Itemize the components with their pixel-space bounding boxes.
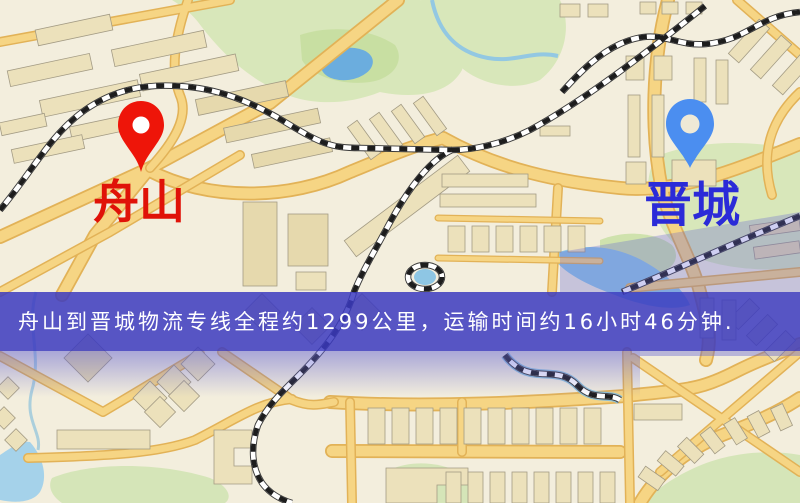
banner-text: 舟山到晋城物流专线全程约1299公里，运输时间约16小时46分钟. — [18, 310, 735, 334]
map-canvas[interactable]: 舟山到晋城物流专线全程约1299公里，运输时间约16小时46分钟. 舟山 晋城 — [0, 0, 800, 503]
destination-label: 晋城 — [644, 179, 740, 232]
pin-hole — [133, 117, 150, 134]
pin-hole — [681, 115, 700, 134]
origin-label: 舟山 — [93, 177, 185, 228]
map-screenshot: 舟山到晋城物流专线全程约1299公里，运输时间约16小时46分钟. 舟山 晋城 — [0, 0, 800, 503]
route-info-banner: 舟山到晋城物流专线全程约1299公里，运输时间约16小时46分钟. — [0, 292, 800, 351]
